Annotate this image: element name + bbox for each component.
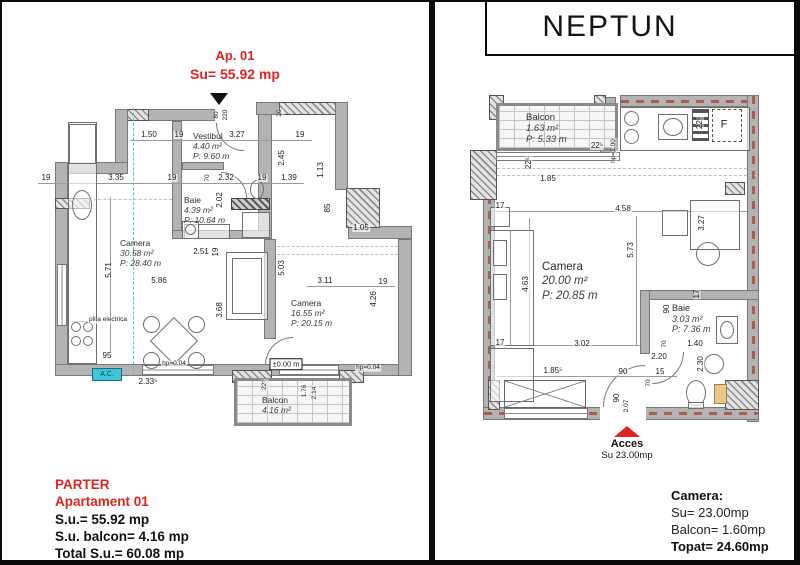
floor-plan-sheet: Ap. 01 Su= 55.92 mp: [0, 0, 800, 565]
dim-label: 22⁵: [525, 156, 533, 170]
dim-label: 17: [495, 339, 506, 347]
dim-label: 15: [655, 368, 666, 376]
dim-label: 4.63: [522, 275, 530, 293]
right-summary: Camera: Su= 23.00mp Balcon= 1.60mp Topat…: [671, 488, 769, 556]
dim-label: 3.27: [698, 214, 706, 232]
summary-balcon: Balcon= 1.60mp: [671, 522, 769, 539]
dim-label: 1.85⁵: [543, 367, 564, 375]
dim-label: 70: [662, 339, 669, 348]
dim-label: 22⁵: [696, 116, 704, 130]
access-label: Acces: [587, 438, 667, 450]
right-plan-dimensions: 22⁵22⁵1.85hp=1.0022⁵F174.585.734.633.271…: [2, 2, 800, 565]
dim-label: 2.30: [697, 355, 705, 373]
dim-label: 90: [663, 304, 671, 315]
summary-title: Camera:: [671, 488, 769, 505]
dim-label: 17: [693, 289, 701, 300]
dim-label: 22⁵: [590, 142, 604, 150]
dim-label: 1.40: [686, 340, 704, 348]
dim-label: 2.20: [650, 353, 668, 361]
dim-label: 4.58: [614, 205, 632, 213]
dim-label: 1.85: [539, 175, 557, 183]
access-arrow-icon: [614, 426, 640, 437]
summary-su: Su= 23.00mp: [671, 505, 769, 522]
dim-label: 2.07: [624, 399, 631, 414]
dim-label: 17: [495, 202, 506, 210]
access-label-block: Acces Su 23.00mp: [587, 438, 667, 461]
dim-label: 90: [613, 393, 621, 404]
dim-label: 3.02: [573, 340, 591, 348]
dim-label: hp=1.00: [611, 138, 618, 164]
dim-label: F: [720, 120, 729, 131]
dim-label: 90: [618, 368, 629, 376]
dim-label: 70: [646, 378, 653, 387]
access-area: Su 23.00mp: [587, 450, 667, 461]
summary-total: Topat= 24.60mp: [671, 539, 769, 556]
dim-label: 5.73: [627, 241, 635, 259]
